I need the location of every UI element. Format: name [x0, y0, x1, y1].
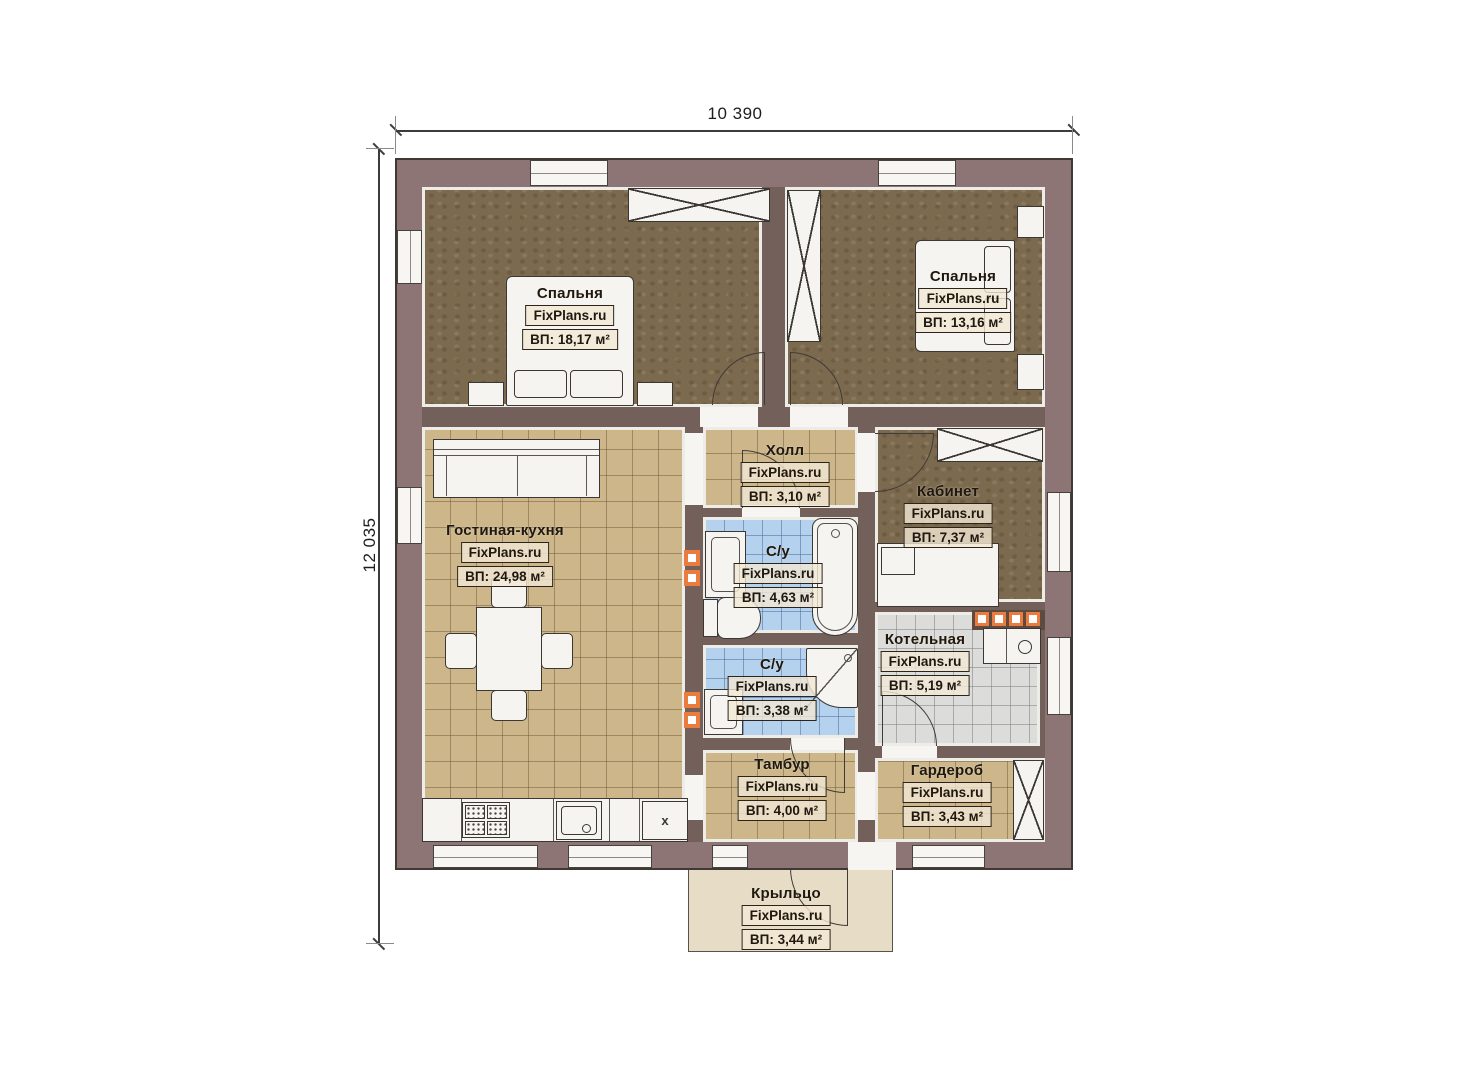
room-label-bath-1: С/у FixPlans.ru ВП: 4,63 м²	[734, 543, 823, 608]
entrance-door-opening	[848, 842, 896, 870]
floor-plan: 10 390 12 035	[0, 0, 1473, 1080]
chair	[541, 633, 573, 669]
room-area: ВП: 3,10 м²	[741, 486, 829, 507]
pillow	[570, 370, 623, 398]
window-right-boiler	[1047, 637, 1071, 715]
room-area: ВП: 3,44 м²	[742, 929, 830, 950]
extension-line	[366, 943, 394, 944]
boiler-dial	[1018, 640, 1032, 654]
room-area: ВП: 4,00 м²	[738, 800, 826, 821]
sofa	[433, 439, 600, 498]
brand-watermark: FixPlans.ru	[904, 503, 993, 524]
counter-divider	[609, 799, 610, 841]
extension-line	[395, 116, 396, 154]
window-top-bedroom-1	[530, 160, 608, 186]
extension-line	[366, 148, 394, 149]
towel-radiator-icon	[684, 570, 700, 586]
room-label-wardrobe: Гардероб FixPlans.ru ВП: 3,43 м²	[903, 762, 992, 827]
room-name: Холл	[766, 442, 804, 459]
brand-watermark: FixPlans.ru	[728, 676, 817, 697]
sink-drain	[582, 824, 591, 833]
opening-tambour-wardrobe	[857, 772, 875, 820]
sofa-armrest	[586, 455, 587, 496]
room-label-bedroom-1: Спальня FixPlans.ru ВП: 18,17 м²	[522, 285, 618, 350]
brand-watermark: FixPlans.ru	[734, 563, 823, 584]
stove-burner	[465, 821, 485, 835]
room-name: Гардероб	[911, 762, 984, 779]
window-bottom-wardrobe	[912, 845, 985, 868]
towel-radiator-icon	[684, 550, 700, 566]
wardrobe-cabinet	[1013, 760, 1044, 840]
radiator-icon	[1026, 612, 1040, 626]
room-name: С/у	[760, 656, 784, 673]
room-name: С/у	[766, 543, 790, 560]
opening-living-hall	[685, 433, 703, 505]
room-name: Спальня	[537, 285, 603, 302]
room-label-boiler: Котельная FixPlans.ru ВП: 5,19 м²	[881, 631, 970, 696]
brand-watermark: FixPlans.ru	[881, 651, 970, 672]
shower-head	[844, 654, 852, 662]
nightstand	[637, 382, 673, 406]
towel-radiator-icon	[684, 712, 700, 728]
window-bottom-kitchen-1	[433, 845, 538, 868]
room-area: ВП: 24,98 м²	[457, 566, 553, 587]
brand-watermark: FixPlans.ru	[526, 305, 615, 326]
sofa-back-line	[434, 449, 599, 450]
brand-watermark: FixPlans.ru	[919, 288, 1008, 309]
stove-icon	[462, 802, 510, 838]
room-label-tambour: Тамбур FixPlans.ru ВП: 4,00 м²	[738, 756, 827, 821]
window-bottom-tambour	[712, 845, 748, 868]
room-label-bedroom-2: Спальня FixPlans.ru ВП: 13,16 м²	[915, 268, 1011, 333]
bathtub-inner	[817, 523, 853, 631]
brand-watermark: FixPlans.ru	[461, 542, 550, 563]
room-label-porch: Крыльцо FixPlans.ru ВП: 3,44 м²	[742, 885, 831, 950]
bathtub-drain	[831, 529, 840, 538]
room-label-living: Гостиная-кухня FixPlans.ru ВП: 24,98 м²	[446, 522, 564, 587]
radiator-icon	[992, 612, 1006, 626]
sink-basin	[561, 806, 597, 835]
extension-line	[1072, 116, 1073, 154]
sofa-seat-divider	[517, 455, 518, 496]
wardrobe-study	[937, 428, 1043, 462]
counter-divider	[639, 799, 640, 841]
fridge-unit-label: x	[661, 813, 668, 828]
room-label-study: Кабинет FixPlans.ru ВП: 7,37 м²	[904, 483, 993, 548]
dimension-label-side: 12 035	[360, 500, 380, 590]
room-name: Спальня	[930, 268, 996, 285]
radiator-icon	[1009, 612, 1023, 626]
door-opening-study	[857, 433, 875, 492]
room-area: ВП: 13,16 м²	[915, 312, 1011, 333]
brand-watermark: FixPlans.ru	[742, 905, 831, 926]
window-bottom-kitchen-2	[568, 845, 652, 868]
kitchen-sink-icon	[556, 801, 602, 840]
room-area: ВП: 7,37 м²	[904, 527, 992, 548]
window-left-bedroom-1	[397, 230, 422, 284]
pillow	[881, 547, 915, 575]
dimension-line-top	[396, 130, 1074, 132]
room-area: ВП: 3,38 м²	[728, 700, 816, 721]
towel-radiator-icon	[684, 692, 700, 708]
nightstand	[1017, 354, 1044, 390]
stove-burner	[487, 821, 507, 835]
room-name: Котельная	[885, 631, 965, 648]
toilet-tank	[703, 599, 718, 637]
brand-watermark: FixPlans.ru	[741, 462, 830, 483]
room-name: Гостиная-кухня	[446, 522, 564, 539]
sofa-armrest	[446, 455, 447, 496]
room-area: ВП: 5,19 м²	[881, 675, 969, 696]
door-opening-boiler	[882, 746, 937, 758]
nightstand	[468, 382, 504, 406]
door-opening-bedroom-2	[790, 407, 848, 427]
boiler-divider	[1006, 629, 1007, 663]
room-label-bath-2: С/у FixPlans.ru ВП: 3,38 м²	[728, 656, 817, 721]
counter-divider	[553, 799, 554, 841]
wardrobe-bedroom-1	[628, 188, 770, 222]
room-name: Кабинет	[917, 483, 979, 500]
door-opening-bath-1	[742, 508, 800, 517]
chair	[491, 690, 527, 721]
room-name: Крыльцо	[751, 885, 821, 902]
fridge-unit: x	[642, 801, 688, 840]
chair	[445, 633, 477, 669]
room-label-hall: Холл FixPlans.ru ВП: 3,10 м²	[741, 442, 830, 507]
stove-burner	[487, 805, 507, 819]
dimension-line-side	[378, 149, 380, 944]
door-opening-bedroom-1	[700, 407, 758, 427]
brand-watermark: FixPlans.ru	[738, 776, 827, 797]
nightstand	[1017, 206, 1044, 238]
stove-burner	[465, 805, 485, 819]
room-area: ВП: 18,17 м²	[522, 329, 618, 350]
window-left-living	[397, 487, 422, 544]
dimension-label-top: 10 390	[396, 104, 1074, 124]
pillow	[514, 370, 567, 398]
radiator-icon	[975, 612, 989, 626]
boiler-unit	[983, 628, 1041, 664]
window-top-bedroom-2	[878, 160, 956, 186]
room-area: ВП: 4,63 м²	[734, 587, 822, 608]
brand-watermark: FixPlans.ru	[903, 782, 992, 803]
dining-table	[476, 607, 542, 691]
wardrobe-bedroom-2	[787, 190, 821, 342]
window-right-study	[1047, 492, 1071, 572]
room-area: ВП: 3,43 м²	[903, 806, 991, 827]
room-name: Тамбур	[754, 756, 810, 773]
